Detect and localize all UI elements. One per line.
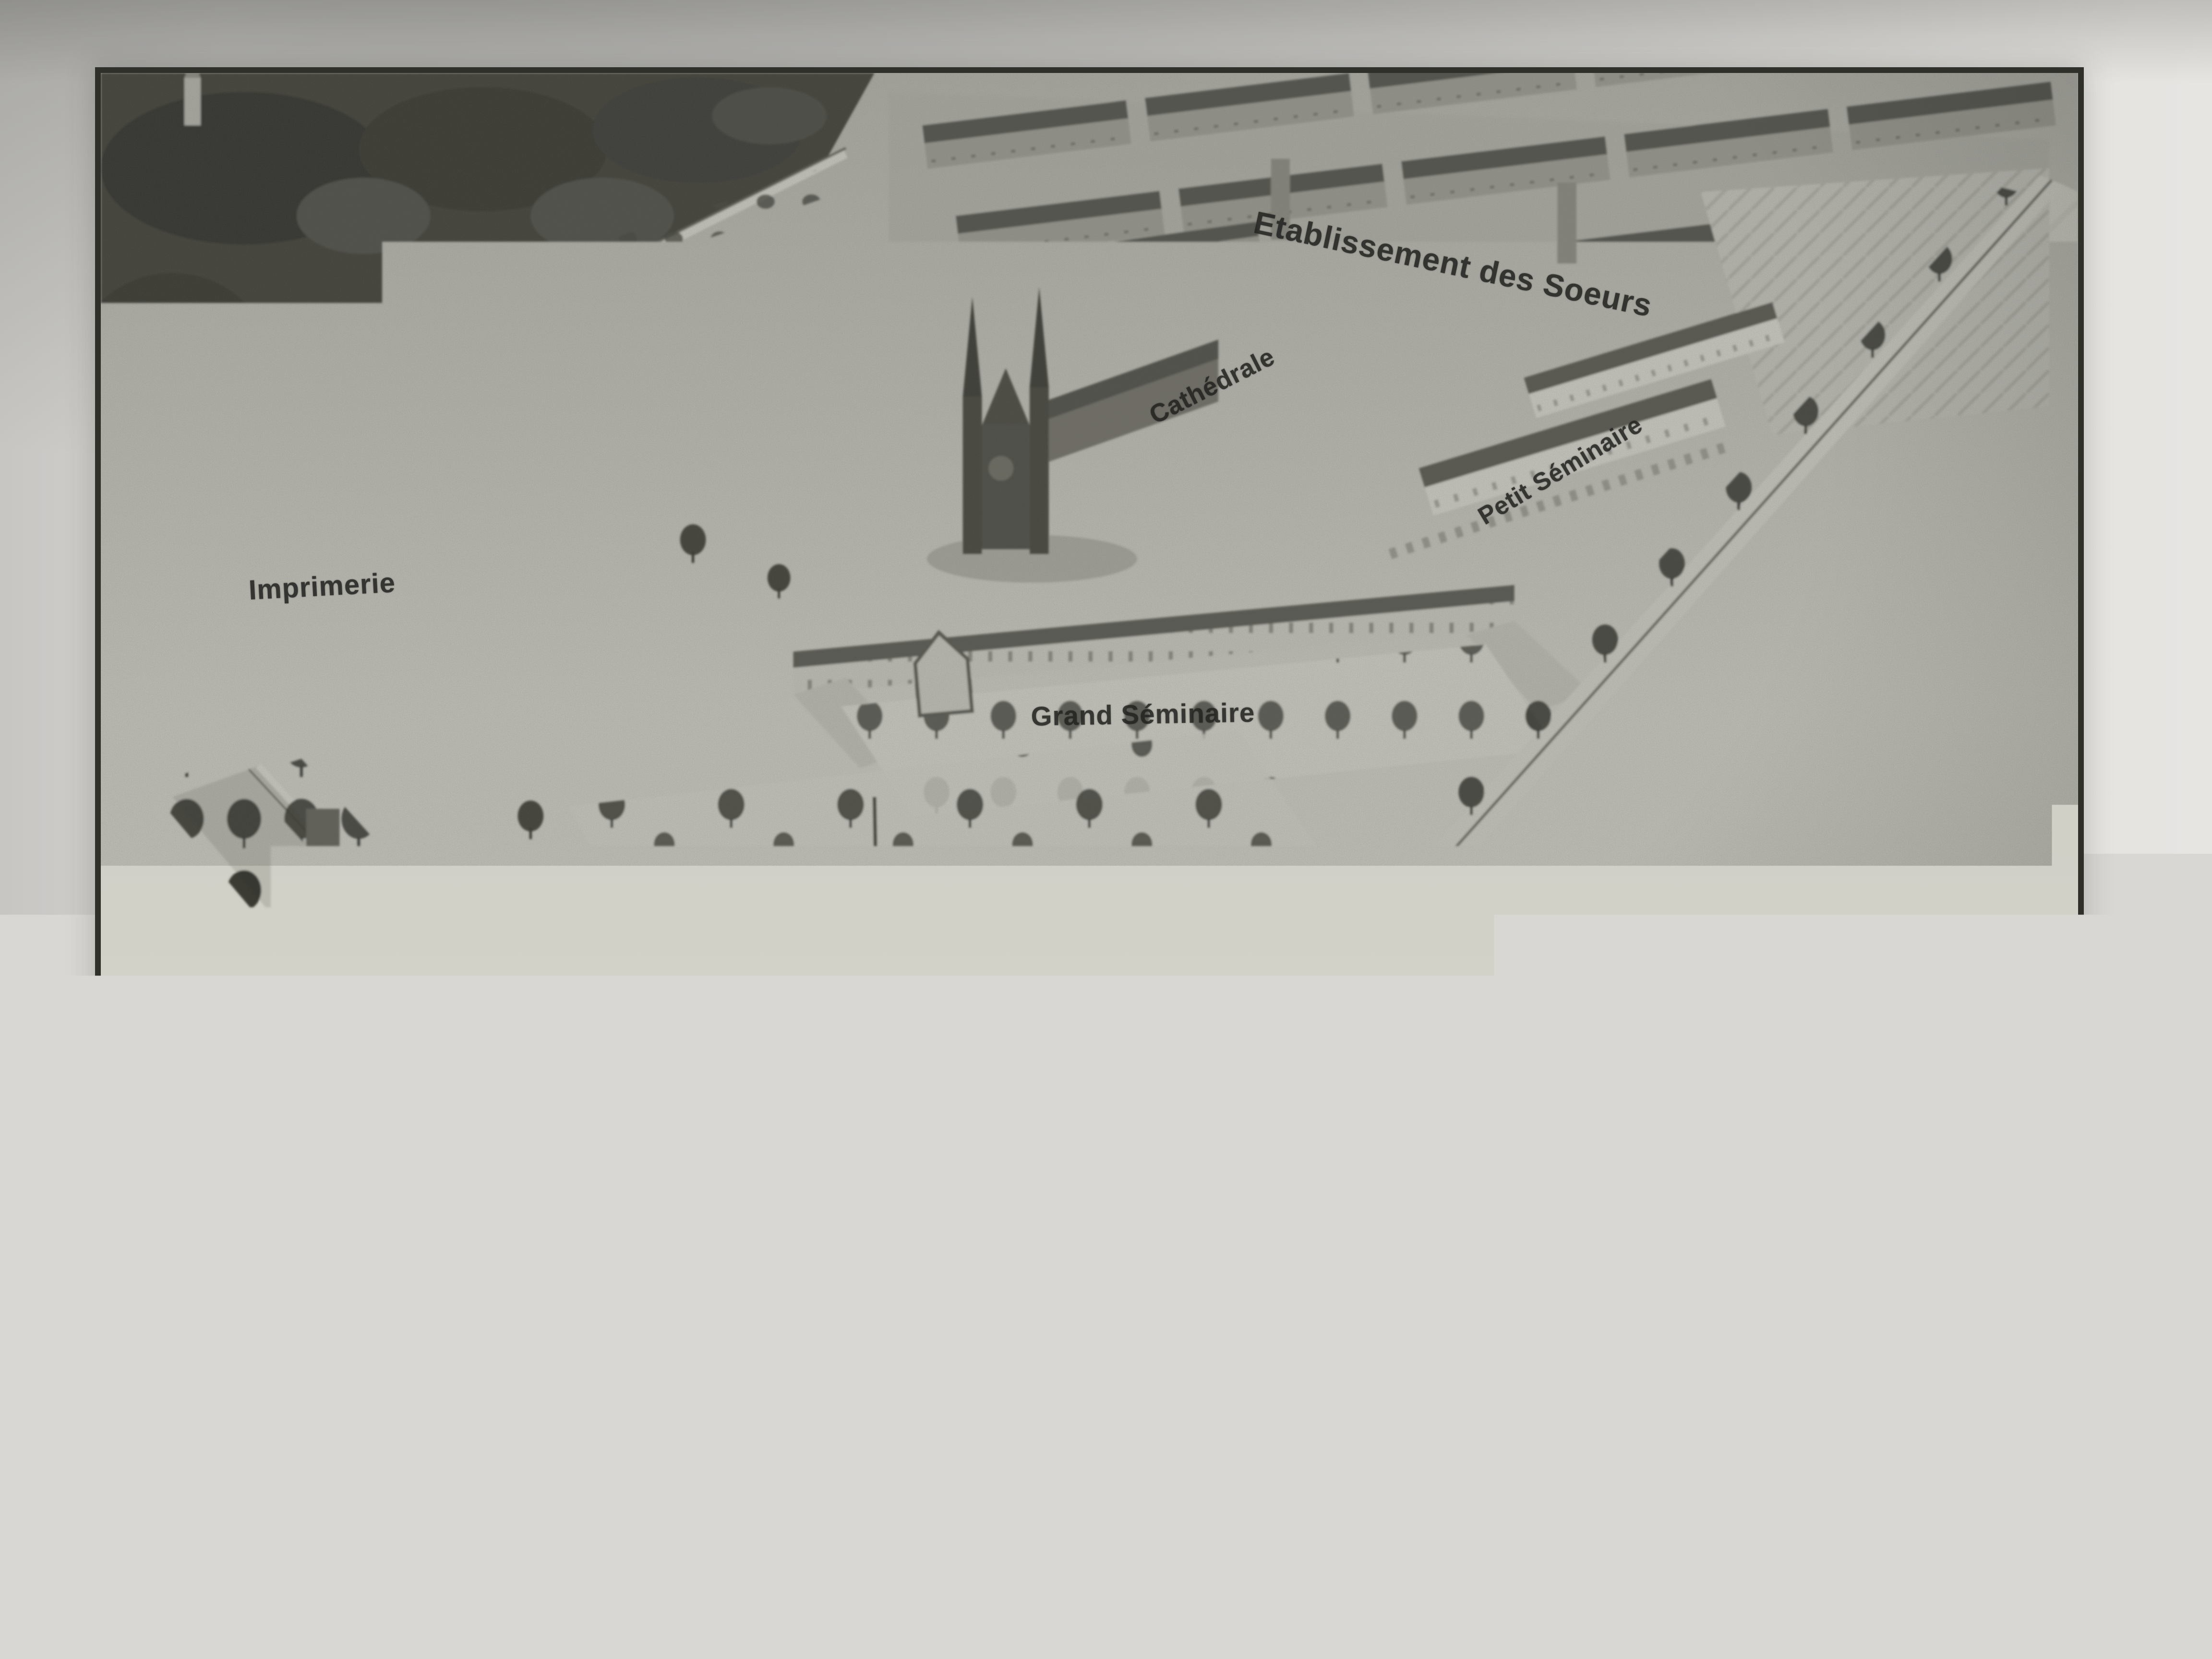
- illustration-caption: LE PÉTANG A VOL D'OISEAU.: [0, 1508, 2212, 1534]
- scanned-book-page: Etablissement des Soeurs Cathédrale Peti…: [0, 0, 2212, 1659]
- illustration-frame: Etablissement des Soeurs Cathédrale Peti…: [95, 67, 2084, 1482]
- engraving-birdseye-view: [101, 73, 2078, 1477]
